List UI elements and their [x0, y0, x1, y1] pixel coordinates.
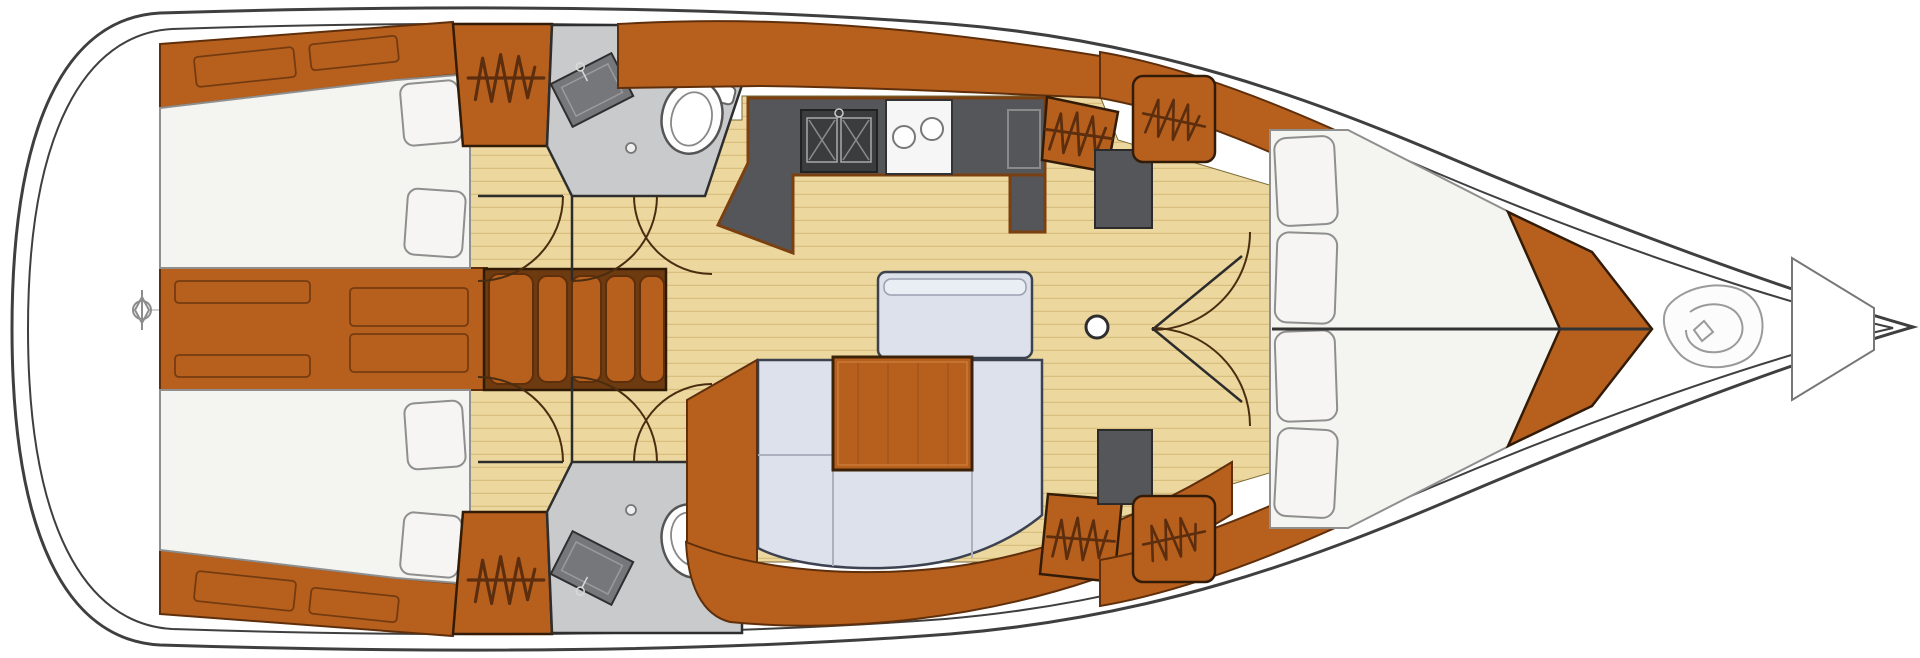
step-tread: [489, 274, 533, 384]
boat-floor-plan: [0, 0, 1920, 658]
pillow: [1274, 330, 1337, 422]
step-tread: [538, 276, 567, 382]
burner-icon: [893, 126, 915, 148]
hanging-locker: [453, 24, 552, 146]
step-tread: [640, 276, 664, 382]
pillow: [1274, 427, 1339, 518]
step-tread: [572, 276, 601, 382]
companionway-area: [160, 268, 666, 390]
galley-double-sink-icon: [801, 109, 877, 172]
galley-counter-return: [1010, 175, 1045, 232]
forward-bulkhead-starboard: [1098, 430, 1152, 504]
floor-plan-svg: [0, 0, 1920, 658]
pillow: [399, 80, 462, 147]
stove-icon: [886, 100, 952, 174]
chain-locker-outline: [1792, 258, 1874, 400]
step-tread: [606, 276, 635, 382]
door-knob-icon: [626, 143, 636, 153]
pillow: [404, 400, 466, 470]
pillow: [1274, 232, 1337, 324]
salon-bench: [878, 272, 1032, 358]
door-knob-icon: [626, 505, 636, 515]
pillow: [404, 188, 466, 258]
burner-icon: [921, 118, 943, 140]
pillow: [399, 512, 462, 579]
mast-post-icon: [1086, 316, 1108, 338]
pillow: [1274, 135, 1339, 226]
bench-backrest: [884, 279, 1026, 295]
salon-table: [833, 357, 972, 470]
